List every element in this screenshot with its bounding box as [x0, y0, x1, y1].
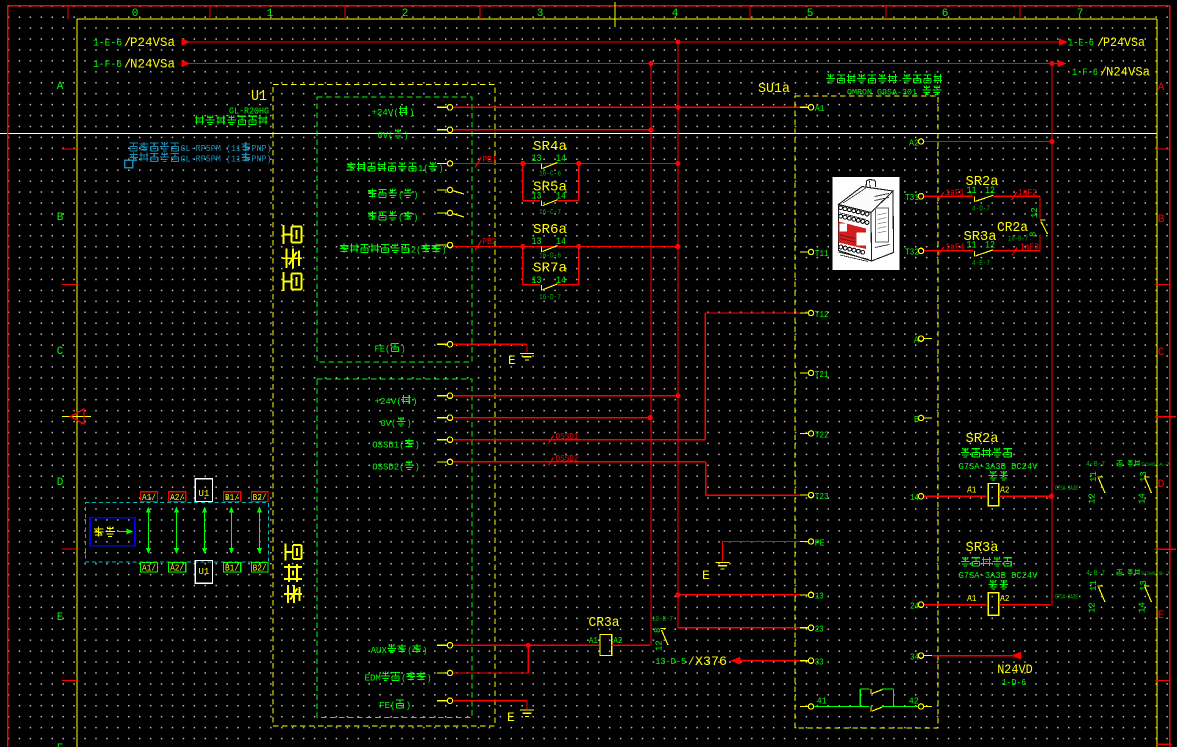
svg-text:SR2a: SR2a [966, 431, 999, 447]
svg-text:4-D-7: 4-D-7 [972, 206, 990, 214]
svg-text:2(: 2( [411, 246, 421, 256]
svg-text:12: 12 [1088, 602, 1098, 613]
svg-text:GL-RP5PM (11: GL-RP5PM (11 [181, 143, 242, 154]
svg-text:(: ( [401, 674, 406, 684]
svg-text:SCH6-A-7: SCH6-A-7 [1141, 461, 1170, 468]
svg-text:13-D-5: 13-D-5 [655, 656, 686, 667]
svg-text:SR4a: SR4a [533, 139, 567, 155]
svg-text:14: 14 [1138, 493, 1148, 504]
svg-text:13: 13 [532, 237, 542, 248]
svg-text:G7SA-3A3B: G7SA-3A3B [1055, 594, 1078, 601]
svg-text:A: A [914, 335, 920, 345]
svg-text:1-D-6: 1-D-6 [1002, 678, 1026, 688]
svg-text:P24VSa: P24VSa [130, 35, 175, 50]
svg-text:): ) [423, 646, 428, 656]
svg-text:EDM: EDM [365, 674, 381, 684]
svg-text:A1: A1 [967, 485, 977, 496]
svg-text:1aF1: 1aF1 [945, 187, 964, 198]
svg-text:B2/: B2/ [253, 493, 267, 503]
svg-text:14: 14 [556, 237, 566, 248]
svg-text:1: 1 [267, 8, 274, 20]
svg-text:GL-R20HG: GL-R20HG [229, 106, 269, 117]
svg-text:FE(: FE( [379, 701, 395, 711]
svg-text:0V(: 0V( [378, 131, 394, 141]
svg-text:A2/: A2/ [170, 493, 184, 503]
svg-text:): ) [404, 131, 409, 141]
svg-text:1-E-6: 1-E-6 [93, 39, 122, 50]
svg-text:1-F-6: 1-F-6 [1072, 68, 1098, 79]
svg-text:10-B-7: 10-B-7 [652, 616, 673, 624]
svg-text:CR2a: CR2a [997, 220, 1028, 236]
svg-text:23: 23 [815, 625, 824, 635]
svg-text:U1: U1 [198, 489, 209, 499]
svg-text:7: 7 [1077, 8, 1084, 20]
svg-text:N24VD: N24VD [997, 662, 1033, 677]
svg-text:A2: A2 [1000, 485, 1010, 496]
svg-text:U1: U1 [198, 567, 209, 577]
svg-text:T31: T31 [905, 193, 919, 203]
svg-text:1(: 1( [418, 164, 428, 174]
svg-text:AUX: AUX [371, 646, 388, 656]
svg-text:12: 12 [655, 640, 665, 651]
svg-text:A2: A2 [1000, 593, 1010, 604]
svg-text:1-F-6: 1-F-6 [93, 60, 122, 71]
svg-text:14: 14 [556, 192, 566, 203]
svg-text:4: 4 [672, 8, 679, 20]
svg-text:OSSD1: OSSD1 [556, 431, 579, 442]
svg-text:OSSD2(: OSSD2( [372, 463, 404, 473]
svg-text:OSSD1(: OSSD1( [372, 441, 404, 451]
svg-text:8: 8 [1029, 232, 1039, 237]
svg-text:SR2a: SR2a [966, 174, 999, 190]
svg-text:SR7a: SR7a [533, 261, 567, 277]
svg-text:B: B [1158, 214, 1165, 226]
svg-text:16-C-7: 16-C-7 [539, 209, 561, 217]
svg-text:-: - [898, 76, 902, 86]
svg-text:4-B-7: 4-B-7 [1086, 570, 1105, 578]
svg-text:): ) [413, 213, 418, 223]
svg-text:(: ( [398, 213, 403, 223]
svg-text:A2: A2 [909, 138, 919, 148]
svg-text:13: 13 [815, 592, 824, 602]
svg-text:C: C [1158, 347, 1165, 359]
svg-text:GL-RP5PM (11: GL-RP5PM (11 [181, 154, 242, 165]
svg-text:13: 13 [532, 192, 542, 203]
svg-text:16-C-6: 16-C-6 [539, 171, 561, 179]
svg-text:U1: U1 [251, 88, 267, 105]
svg-text:G7SA-3A3B DC24V: G7SA-3A3B DC24V [959, 461, 1038, 472]
svg-text:CR3a: CR3a [589, 615, 620, 631]
svg-text:F: F [57, 743, 64, 747]
svg-text:42: 42 [909, 697, 919, 707]
svg-text:/: / [688, 657, 695, 669]
svg-text:13: 13 [532, 154, 542, 165]
svg-text:12: 12 [1030, 207, 1040, 218]
svg-text:1aF4: 1aF4 [945, 242, 964, 253]
svg-text:): ) [401, 345, 406, 355]
svg-text:D: D [57, 477, 64, 489]
svg-text:E: E [507, 710, 515, 725]
svg-text:P24VSa: P24VSa [1103, 35, 1145, 50]
svg-text:): ) [427, 674, 432, 684]
svg-text:5: 5 [807, 8, 814, 20]
svg-text:14: 14 [1138, 602, 1148, 613]
svg-text:PNP): PNP) [251, 143, 271, 154]
svg-text:A1: A1 [967, 593, 977, 604]
svg-text:SR3a: SR3a [964, 229, 997, 245]
svg-text:12: 12 [1088, 493, 1098, 504]
svg-text:33: 33 [815, 658, 824, 668]
svg-text:T22: T22 [815, 430, 829, 440]
svg-text:PNP): PNP) [251, 154, 271, 165]
svg-text:FE(: FE( [375, 345, 391, 355]
svg-text:OSSD2: OSSD2 [556, 453, 579, 464]
svg-text:A1: A1 [589, 635, 598, 646]
svg-text:): ) [406, 701, 412, 711]
svg-text:T11: T11 [815, 249, 829, 259]
svg-text:N24VSa: N24VSa [1106, 65, 1150, 80]
svg-text:(: ( [398, 191, 403, 201]
svg-text:1aF2: 1aF2 [1018, 187, 1037, 198]
svg-text:+24V(: +24V( [372, 108, 399, 118]
svg-text:): ) [412, 397, 418, 407]
svg-text:PE: PE [815, 538, 825, 548]
svg-text:): ) [415, 463, 420, 473]
svg-text:): ) [413, 191, 418, 201]
svg-text:PB1: PB1 [483, 154, 497, 165]
svg-text:34: 34 [910, 652, 919, 662]
svg-text:SU1a: SU1a [758, 81, 790, 97]
svg-text:24: 24 [910, 602, 919, 612]
svg-text:1aF3: 1aF3 [1020, 242, 1039, 253]
svg-text:(: ( [407, 646, 412, 656]
svg-text:41: 41 [817, 697, 827, 707]
svg-text:N24VSa: N24VSa [130, 57, 175, 72]
svg-text:A: A [1158, 82, 1165, 94]
svg-text:): ) [409, 108, 415, 118]
svg-text:+24V(: +24V( [375, 397, 402, 407]
svg-text:G7SA-3A3B DC24V: G7SA-3A3B DC24V [959, 570, 1038, 581]
svg-text:E: E [57, 612, 64, 624]
svg-text:6: 6 [942, 8, 949, 20]
svg-text:C: C [57, 346, 64, 358]
svg-text:B: B [914, 415, 920, 425]
svg-text:T32: T32 [905, 248, 919, 258]
svg-text:B: B [57, 212, 64, 224]
svg-text:PB2: PB2 [483, 236, 497, 247]
svg-text:E: E [702, 568, 710, 583]
svg-text:14: 14 [910, 493, 919, 503]
svg-text:4-E-7: 4-E-7 [972, 260, 990, 268]
svg-text:X376: X376 [695, 654, 727, 669]
svg-text:4-B-7: 4-B-7 [1086, 461, 1105, 469]
svg-text:E: E [508, 353, 516, 368]
svg-text:B2/: B2/ [253, 564, 267, 574]
svg-text:): ) [439, 164, 444, 174]
svg-text:T21: T21 [815, 370, 829, 380]
svg-text:A2/: A2/ [170, 564, 184, 574]
svg-text:SR3a: SR3a [966, 540, 999, 556]
svg-text:OMRON G9SA-301: OMRON G9SA-301 [847, 88, 922, 98]
svg-text:B1/: B1/ [225, 493, 239, 503]
svg-text:A1: A1 [815, 104, 825, 114]
svg-text:A1/: A1/ [142, 564, 156, 574]
svg-text:A1/: A1/ [142, 493, 156, 503]
svg-text:B1/: B1/ [225, 564, 239, 574]
svg-text:A2: A2 [613, 635, 622, 646]
svg-text:0V(: 0V( [381, 419, 397, 429]
svg-text:0: 0 [132, 8, 139, 20]
svg-text:G7SA-3A3B: G7SA-3A3B [1055, 485, 1078, 492]
svg-text:A: A [57, 81, 64, 93]
svg-text:14: 14 [556, 154, 566, 165]
svg-text:1-E-6: 1-E-6 [1068, 39, 1094, 50]
svg-text:): ) [442, 246, 447, 256]
svg-text:SR6a: SR6a [533, 222, 567, 238]
svg-text:16-D-7: 16-D-7 [539, 294, 561, 302]
svg-text:3: 3 [537, 8, 544, 20]
svg-text:D: D [1158, 479, 1165, 491]
svg-text:2: 2 [402, 8, 409, 20]
svg-text:13: 13 [532, 276, 542, 287]
svg-text:): ) [407, 419, 412, 429]
svg-text:SCH6-B-7: SCH6-B-7 [1141, 570, 1170, 577]
svg-text:T12: T12 [815, 310, 829, 320]
svg-text:T23: T23 [815, 492, 829, 502]
svg-text:14: 14 [556, 276, 566, 287]
svg-text:): ) [415, 441, 420, 451]
svg-text:16-D-6: 16-D-6 [539, 253, 561, 261]
svg-text:E: E [1158, 610, 1165, 622]
